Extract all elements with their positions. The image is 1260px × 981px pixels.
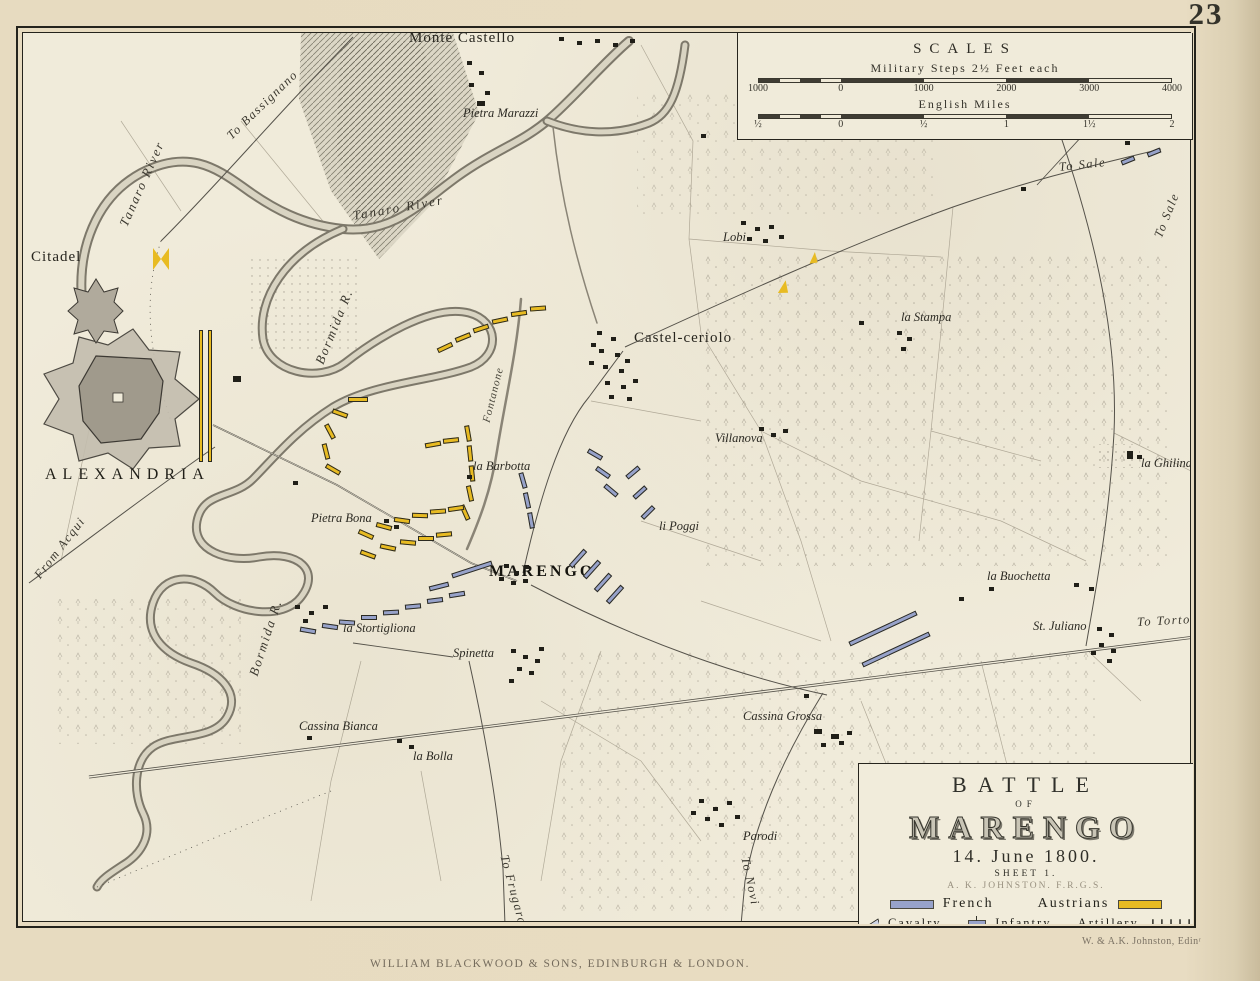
scale-tick: 0	[838, 119, 843, 130]
legend-row-sides: French Austrians	[859, 896, 1193, 912]
legend-french-label: French	[943, 896, 994, 912]
scale-tick: 0	[838, 83, 843, 94]
scale-tick: 3000	[1079, 83, 1099, 94]
scales-panel: SCALES Military Steps 2½ Feet each 10000…	[737, 33, 1193, 140]
map-sheet-page: { "page": { "number": "23", "publisher":…	[0, 0, 1260, 981]
legend-french-swatch	[890, 900, 934, 909]
scale-tick: 1000	[914, 83, 934, 94]
infantry-icon	[968, 920, 986, 925]
scale-tick: 2000	[996, 83, 1016, 94]
legend-cavalry-label: Cavalry	[888, 916, 942, 924]
scale-steps-label: Military Steps 2½ Feet each	[738, 61, 1192, 76]
scale-tick: ½	[920, 119, 928, 130]
legend-austrian-swatch	[1118, 900, 1162, 909]
cavalry-icon	[859, 917, 879, 925]
legend-artillery-label: Artillery	[1078, 916, 1139, 924]
scale-tick: 2	[1170, 119, 1175, 130]
scale-tick: 1½	[1083, 119, 1096, 130]
scale-miles-label: English Miles	[738, 97, 1192, 112]
legend-row-arms: Cavalry Infantry Artillery ↓↓↓↓↓	[859, 916, 1193, 924]
title-marengo: MARENGO	[859, 809, 1193, 846]
artillery-icon: ↓↓↓↓↓	[1148, 917, 1193, 925]
title-battle: BATTLE	[859, 772, 1193, 798]
scale-steps-ticks: 100001000200030004000	[758, 83, 1172, 94]
publisher-imprint: WILLIAM BLACKWOOD & SONS, EDINBURGH & LO…	[370, 958, 750, 970]
legend-austrians-label: Austrians	[1038, 896, 1110, 912]
scale-tick: ½	[754, 119, 762, 130]
scales-title: SCALES	[738, 41, 1192, 58]
scale-miles-ticks: ½0½11½2	[758, 119, 1172, 130]
title-cartouche: BATTLE OF MARENGO 14. June 1800. SHEET 1…	[858, 763, 1193, 924]
engraver-imprint: W. & A.K. Johnston, Edinʳ	[1082, 936, 1201, 947]
scale-tick: 1000	[748, 83, 768, 94]
title-author: A. K. JOHNSTON. F.R.G.S.	[859, 881, 1193, 891]
title-of: OF	[859, 799, 1193, 809]
scale-tick: 1	[1004, 119, 1009, 130]
title-sheet: SHEET 1.	[859, 869, 1193, 879]
legend-infantry-label: Infantry	[995, 916, 1051, 924]
scale-tick: 4000	[1162, 83, 1182, 94]
title-date: 14. June 1800.	[859, 846, 1193, 867]
